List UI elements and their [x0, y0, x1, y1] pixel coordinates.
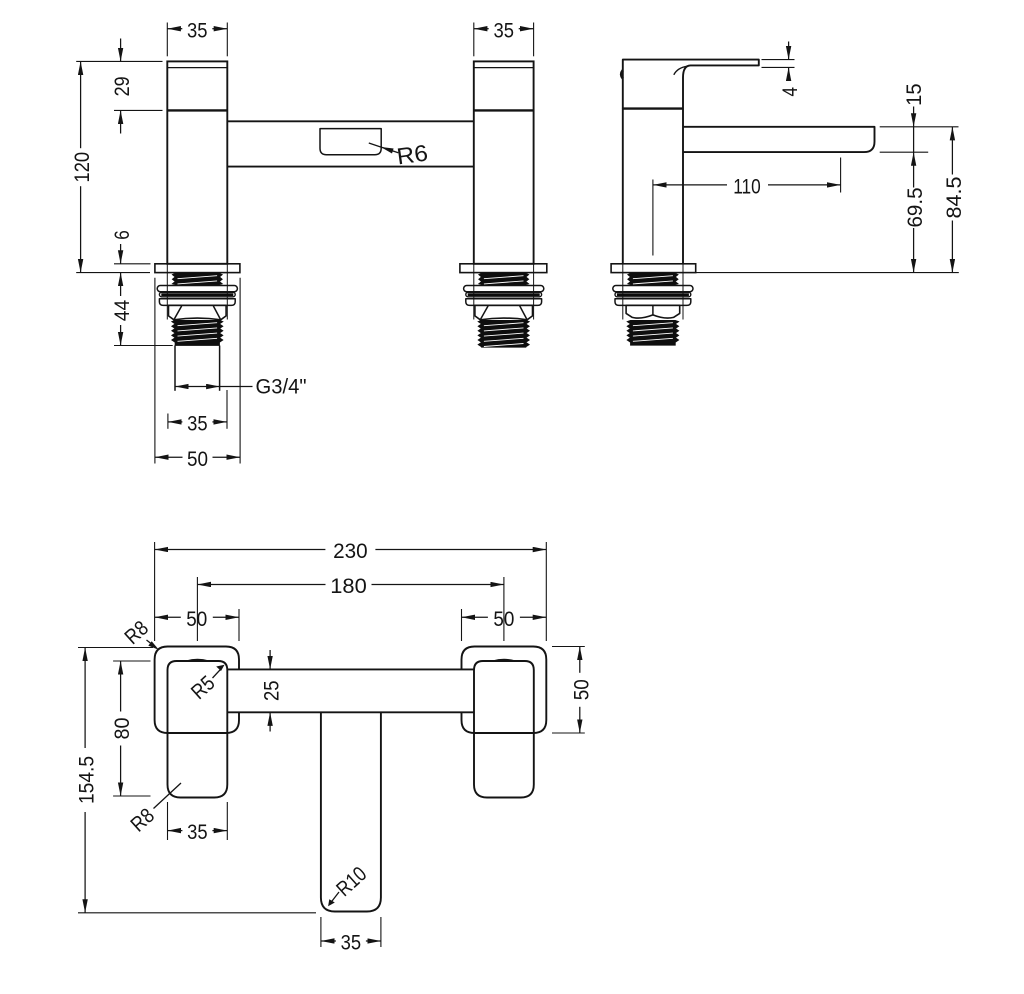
svg-text:29: 29 — [111, 76, 134, 96]
svg-text:35: 35 — [493, 19, 514, 42]
svg-text:110: 110 — [733, 176, 761, 199]
svg-text:15: 15 — [903, 83, 926, 106]
svg-text:80: 80 — [111, 718, 134, 740]
svg-text:35: 35 — [187, 19, 208, 42]
svg-text:50: 50 — [570, 679, 593, 700]
svg-text:35: 35 — [187, 821, 208, 844]
svg-text:180: 180 — [330, 575, 367, 598]
svg-text:25: 25 — [261, 681, 284, 702]
svg-text:6: 6 — [111, 230, 134, 240]
svg-text:44: 44 — [111, 299, 134, 321]
svg-text:69.5: 69.5 — [904, 188, 927, 228]
svg-text:50: 50 — [493, 608, 514, 631]
svg-text:120: 120 — [71, 152, 94, 183]
svg-text:35: 35 — [187, 413, 208, 436]
svg-text:154.5: 154.5 — [76, 756, 99, 804]
svg-text:4: 4 — [779, 87, 802, 97]
svg-text:35: 35 — [341, 932, 362, 955]
svg-text:84.5: 84.5 — [943, 177, 966, 219]
svg-text:R6: R6 — [395, 139, 429, 169]
svg-text:G3/4": G3/4" — [256, 376, 307, 399]
svg-text:50: 50 — [187, 448, 208, 471]
svg-text:50: 50 — [186, 608, 207, 631]
svg-text:230: 230 — [333, 540, 368, 563]
